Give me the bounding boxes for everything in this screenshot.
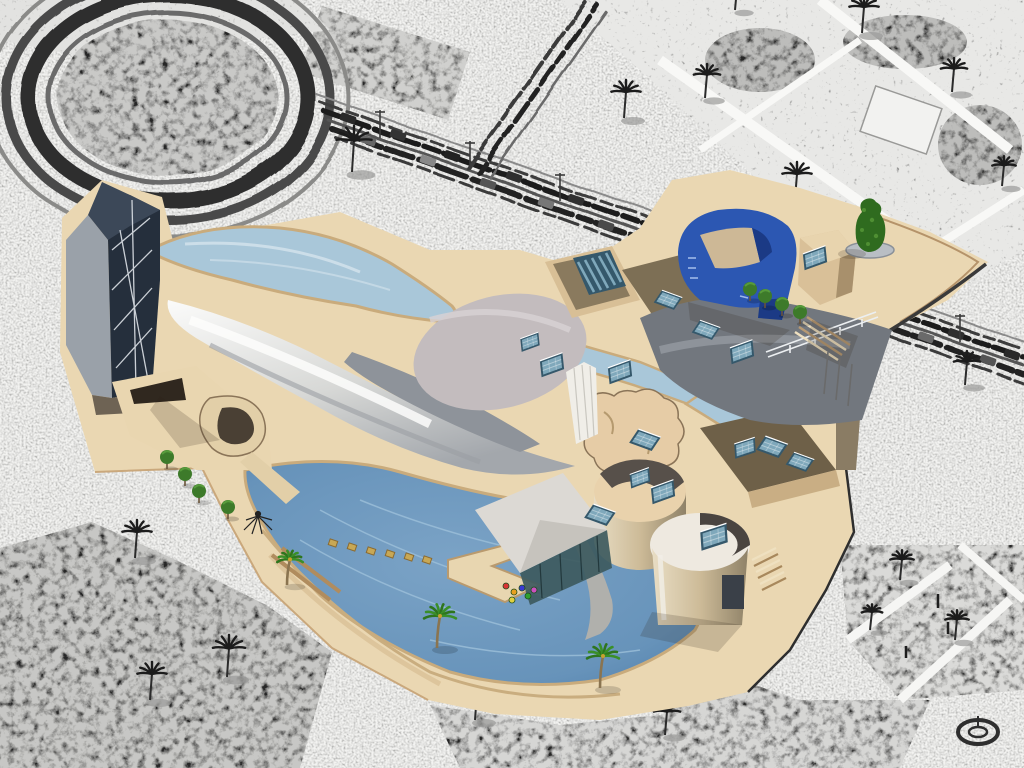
doorway <box>722 575 744 609</box>
flower-sculpture <box>519 585 525 591</box>
sketch-garden-bottom-right-2 <box>760 700 930 768</box>
flower-sculpture <box>503 583 509 589</box>
flower-sculpture <box>511 589 517 595</box>
flower-sculpture <box>509 597 515 603</box>
flower-sculpture <box>525 593 531 599</box>
game-viewport[interactable] <box>0 0 1024 768</box>
flower-sculpture <box>531 587 537 593</box>
city-scene <box>0 0 1024 768</box>
